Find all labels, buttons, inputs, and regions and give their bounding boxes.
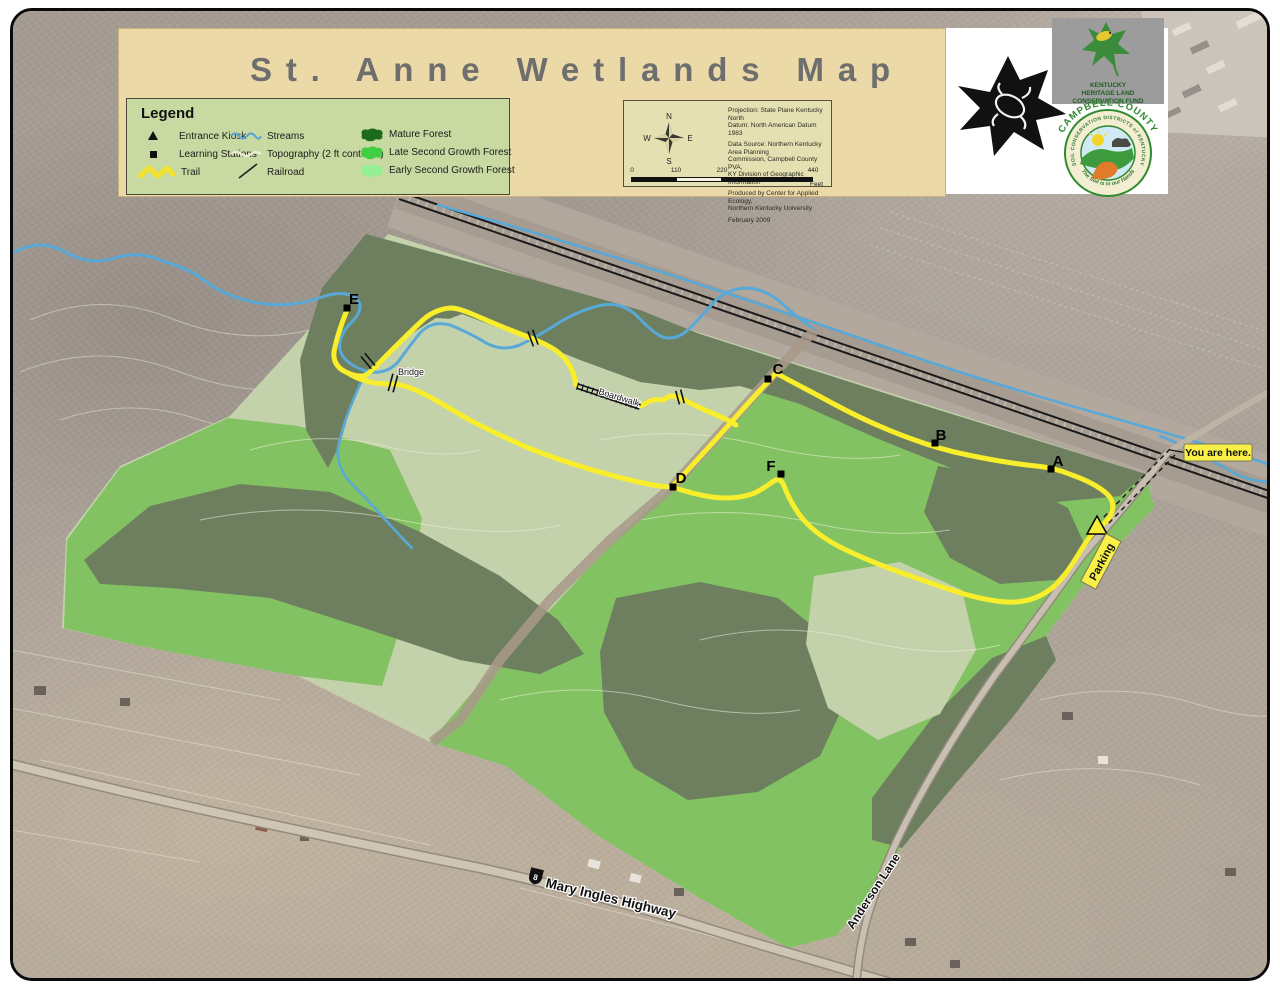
khlcf-text: KENTUCKY HERITAGE LAND CONSERVATION FUND [1052,82,1164,106]
khlcf-leaf-bird-icon [1052,18,1164,80]
highway-label-group: 8 Mary Ingles Highway [527,867,679,921]
scale-unit: Feet [810,181,823,188]
bridge-label: Bridge [398,367,424,377]
railroad-line-icon [229,161,263,186]
kiosk-triangle-icon [141,129,165,148]
map-date: February 2009 [728,217,828,225]
station-c-label: C [773,361,784,378]
early-growth-swatch [359,163,385,184]
station-a-label: A [1053,453,1064,470]
station-e-label: E [349,291,359,308]
khlcf-logo: KENTUCKY HERITAGE LAND CONSERVATION FUND [1052,18,1164,104]
svg-text:S: S [666,157,671,166]
forest-polygons [62,234,1154,948]
map-frame: A B C D E F Bridge Boardwalk You are her… [10,8,1270,981]
trail-line-icon [137,163,175,186]
svg-text:W: W [643,134,651,143]
highway-label: Mary Ingles Highway [544,875,678,921]
station-d-label: D [676,470,687,487]
svg-text:E: E [687,134,692,143]
compass-rose-icon: N S E W [624,105,724,169]
info-panel: N S E W Projection: State Plane Kentucky… [623,100,832,187]
legend-panel: Legend Entrance Kiosk Learning Stations … [126,98,510,195]
stream-line-icon [229,129,263,148]
legend-heading: Legend [141,105,194,122]
station-f-label: F [766,458,775,475]
svg-text:N: N [666,112,672,121]
page-title: St. Anne Wetlands Map [209,51,945,89]
you-are-here-label: You are here. [1185,447,1251,459]
station-b-label: B [936,427,947,444]
